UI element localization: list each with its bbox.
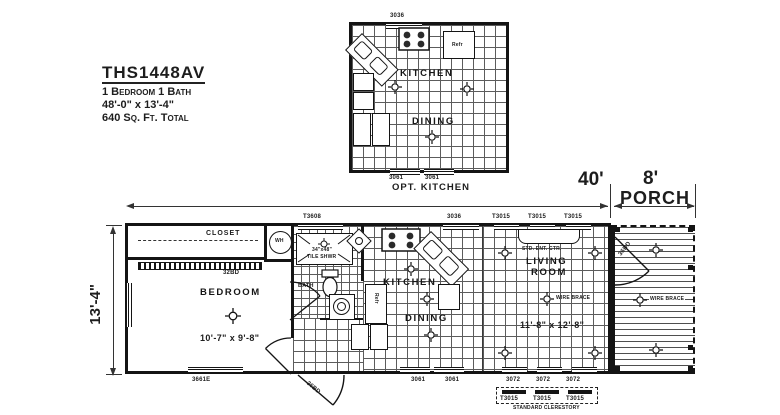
clerestory-transom — [502, 390, 526, 394]
opt-kitchen-bottom-window-label: 3061 — [425, 175, 439, 181]
window-label: 3061 — [411, 377, 425, 383]
porch-post — [615, 227, 620, 232]
window-label: T3015 — [492, 214, 510, 220]
dim-line-40ft — [130, 206, 608, 207]
transom-label: T3015 — [533, 396, 551, 402]
cabinet — [353, 92, 374, 110]
porch-post — [688, 345, 693, 350]
cabinet — [353, 113, 371, 146]
refrigerator: Refr — [443, 31, 475, 59]
overall-size: 48'-0" x 13'-4" — [102, 100, 205, 111]
opt-kitchen-plan: Refr KITCHEN DINING — [349, 22, 509, 173]
window-label: T3608 — [303, 214, 321, 220]
opt-kitchen-caption: OPT. KITCHEN — [392, 183, 470, 193]
opt-dining-room-label: DINING — [412, 117, 455, 127]
transom-label: T3015 — [500, 396, 518, 402]
porch-post — [688, 265, 693, 270]
dim-tick — [106, 374, 122, 375]
dim-line-height — [113, 230, 114, 370]
clerestory-window-label: 3072 — [566, 377, 580, 383]
interior-door-swings — [128, 226, 614, 377]
opt-kitchen-top-window-label: 3036 — [390, 13, 404, 19]
dim-arrow — [687, 203, 695, 209]
dim-tick — [106, 225, 122, 226]
porch-post — [615, 366, 620, 371]
dim-arrow — [126, 203, 134, 209]
porch-wire-brace-label: WIRE BRACE — [649, 297, 685, 302]
ceiling-light-icon — [460, 82, 474, 96]
porch-post — [688, 227, 693, 232]
dim-arrow — [600, 203, 608, 209]
floorplan-sheet: THS1448AV 1 Bedroom 1 Bath 48'-0" x 13'-… — [0, 0, 780, 415]
window-label: 3036 — [447, 214, 461, 220]
main-plan: CLOSET 32BD WH BEDROOM 10'-7" x 9'-8" 34… — [125, 223, 611, 374]
porch-title: PORCH — [620, 189, 690, 207]
porch-width-dim: 8' — [643, 169, 658, 188]
dim-arrow — [110, 226, 116, 234]
dim-tick — [695, 184, 696, 218]
opt-kitchen-room-label: KITCHEN — [400, 69, 453, 79]
ceiling-light-icon — [388, 80, 402, 94]
porch-post — [688, 366, 693, 371]
dim-line-8ft — [614, 206, 694, 207]
window-label: 3061 — [445, 377, 459, 383]
title-block: THS1448AV 1 Bedroom 1 Bath 48'-0" x 13'-… — [102, 64, 205, 124]
beds-baths: 1 Bedroom 1 Bath — [102, 87, 205, 98]
ceiling-light-icon — [633, 293, 647, 307]
model-number: THS1448AV — [102, 64, 205, 84]
total-area: 640 Sq. Ft. Total — [102, 113, 205, 124]
transom-label: T3015 — [566, 396, 584, 402]
main-width-dim: 40' — [578, 170, 604, 189]
clerestory-window-label: 3072 — [506, 377, 520, 383]
ceiling-light-icon — [649, 343, 663, 357]
cabinet — [353, 73, 374, 91]
clerestory-transom — [568, 390, 592, 394]
cabinet — [372, 113, 390, 146]
clerestory-caption: STANDARD CLERESTORY — [513, 406, 580, 411]
range-icon — [398, 27, 430, 51]
clerestory-window-label: 3072 — [536, 377, 550, 383]
height-dim: 13'-4" — [88, 284, 103, 325]
clerestory-transom — [535, 390, 559, 394]
window-label: 3661E — [192, 377, 210, 383]
ceiling-light-icon — [425, 130, 439, 144]
opt-kitchen-bottom-window-label: 3061 — [389, 175, 403, 181]
clerestory-group-box: T3015 T3015 T3015 — [496, 387, 598, 404]
dim-tick — [610, 184, 611, 218]
refrigerator-label: Refr — [452, 43, 463, 48]
dim-arrow — [614, 203, 622, 209]
porch-door-swing — [613, 227, 697, 307]
window-label: T3015 — [528, 214, 546, 220]
ceiling-light-icon — [649, 243, 663, 257]
window-label: T3015 — [564, 214, 582, 220]
